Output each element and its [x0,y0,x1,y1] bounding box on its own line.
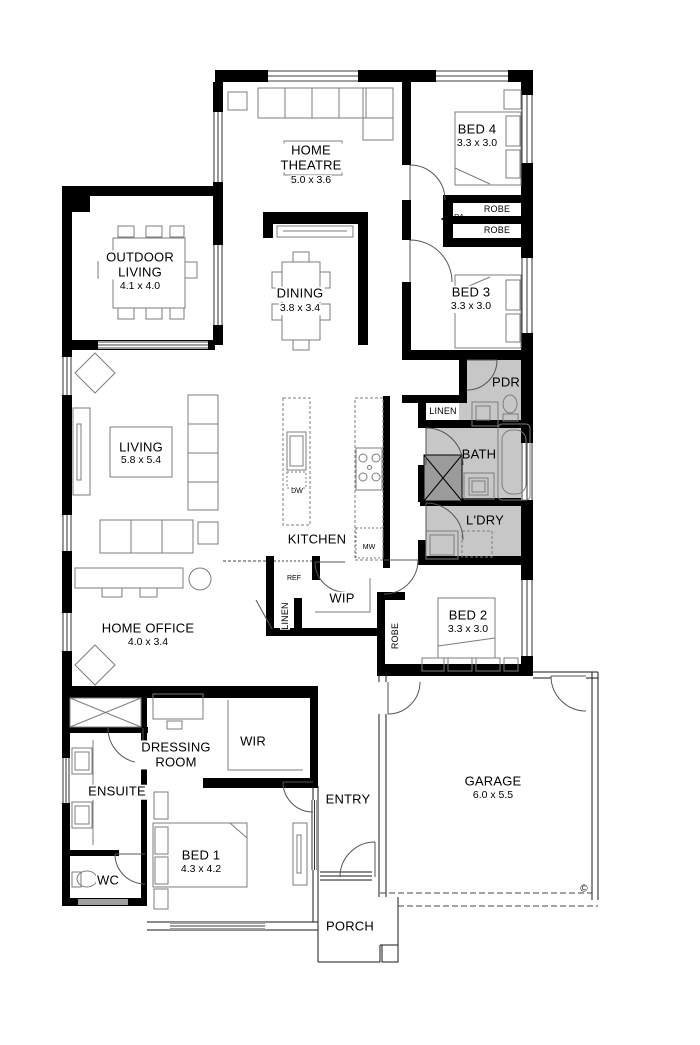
door-bed4 [410,165,445,200]
room-label-entry: ENTRY [325,793,372,808]
label-linen-bath: LINEN [429,406,457,416]
wc-toilet [72,871,97,887]
door-garage-internal [388,682,420,714]
room-dims-bed1: 4.3 x 4.2 [180,864,222,876]
label-dishwasher: DW [291,488,303,496]
room-dims-home-theatre: 5.0 x 3.6 [290,175,332,187]
label-robe-top: ROBE [484,204,510,214]
room-dims-bed3: 3.3 x 3.0 [450,301,492,313]
room-label-dressing-room: DRESSING ROOM [135,740,217,769]
label-robe-bottom: ROBE [484,225,510,235]
room-label-bed1: BED 1 [181,849,222,864]
room-label-bath: BATH [461,448,498,463]
room-dims-bed4: 3.3 x 3.0 [456,138,498,150]
door-garage-rear [551,676,586,711]
room-label-dining: DINING [276,287,325,302]
room-label-bed4: BED 4 [457,123,498,138]
room-dims-bed2: 3.3 x 3.0 [447,624,489,636]
room-label-home-theatre: HOME THEATRE [274,143,348,172]
room-label-bed2: BED 2 [448,609,489,624]
ensuite-fixtures [70,698,141,845]
room-label-wc: WC [96,874,120,889]
copyright-mark: © [579,883,589,894]
kitchen-island [283,398,310,525]
room-label-garage: GARAGE [464,775,523,790]
room-label-pdr: PDR [491,376,521,391]
label-linen-kitchen: LINEN [280,602,290,630]
kitchen-counter [355,398,383,560]
room-dims-home-office: 4.0 x 3.4 [127,637,169,649]
room-label-outdoor-living: OUTDOOR LIVING [99,250,181,279]
bed1-furniture [153,792,307,909]
room-dims-garage: 6.0 x 5.5 [472,790,514,802]
label-microwave: MW [363,544,375,552]
label-fridge: REF [287,575,301,583]
room-label-wip: WIP [328,592,355,607]
room-label-home-office: HOME OFFICE [101,622,195,637]
floor-plan: HOME THEATRE 5.0 x 3.6 BED 4 3.3 x 3.0 O… [0,0,700,1045]
room-label-living: LIVING [118,441,164,456]
room-label-ensuite: ENSUITE [87,785,147,800]
room-label-kitchen: KITCHEN [287,533,347,548]
room-label-bed3: BED 3 [451,286,492,301]
room-label-porch: PORCH [325,920,375,935]
dressing-table [153,694,203,729]
room-dims-outdoor-living: 4.1 x 4.0 [119,281,161,293]
label-robe-bed2: ROBE [390,623,400,649]
room-dims-living: 5.8 x 5.4 [120,455,162,467]
room-label-laundry: L'DRY [465,514,505,529]
room-label-wir: WIR [239,735,267,750]
home-office-desk [75,568,211,597]
label-return-air: RA [454,214,464,222]
room-dims-dining: 3.8 x 3.4 [279,303,321,315]
